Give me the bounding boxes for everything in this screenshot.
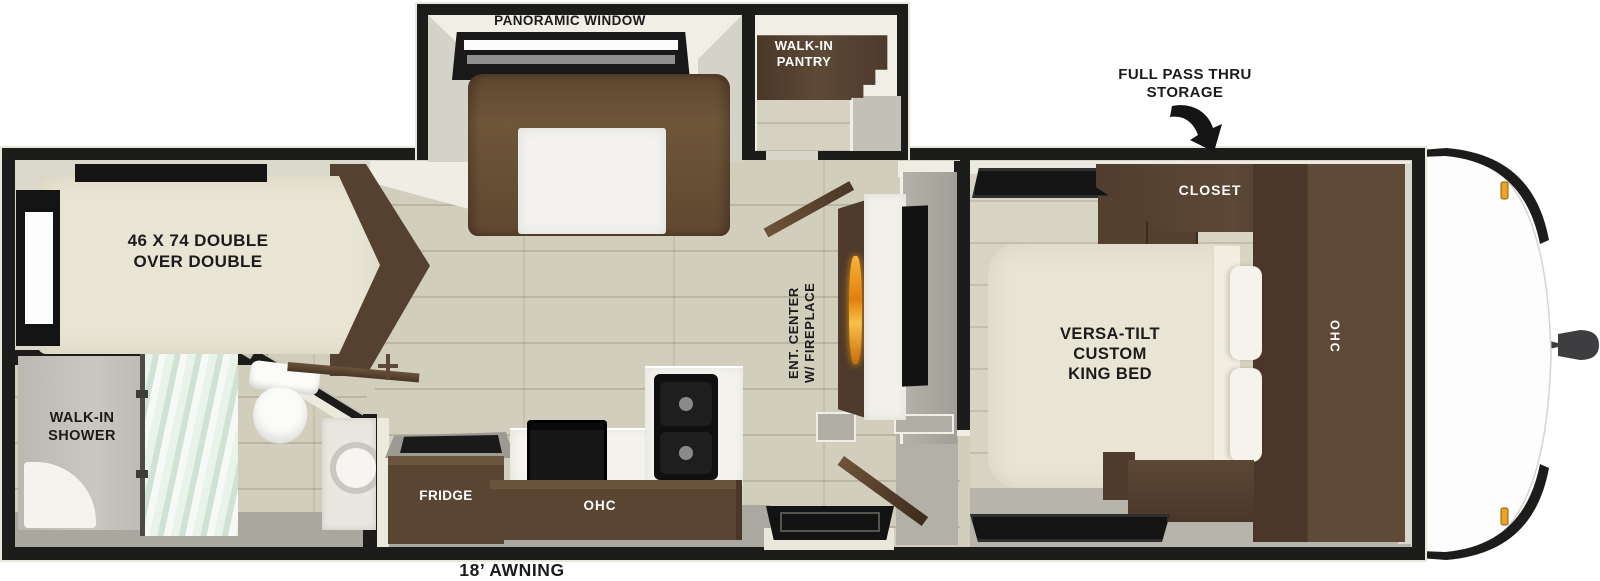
ent-center-label: ENT. CENTER W/ FIREPLACE [786,244,840,422]
closet-label: CLOSET [1155,182,1265,199]
rear-side-window-glass [25,212,53,324]
fridge-label: FRIDGE [390,488,502,504]
nightstand [1128,460,1254,522]
panoramic-window-slat [464,40,678,50]
marker-light-icon [1501,182,1508,199]
entry-corner-floor [896,428,958,545]
awning-label: 18’ AWNING [437,560,587,581]
shower-hinge-icon [136,470,148,478]
sink-drain-icon [679,446,693,460]
fridge-top-inset [400,435,502,453]
kitchen-ohc-label: OHC [540,498,660,514]
bunk-bed-label: 46 X 74 DOUBLE OVER DOUBLE [92,231,304,272]
pantry-floor-wood [757,96,850,151]
pantry-divider-wall [742,6,755,160]
door-handle-icon [378,364,398,368]
floorplan: WALK-IN PANTRY 46 X 74 DOUBLE OVER DOUBL… [0,0,1600,581]
king-bed-label: VERSA-TILT CUSTOM KING BED [1010,324,1210,384]
entry-step-inner [780,512,880,532]
shower-hinge-icon [136,390,148,398]
rear-top-window [75,164,267,182]
fireplace-flame-icon [849,256,862,364]
panoramic-window-slat [467,55,675,64]
washer [322,418,376,530]
storage-arrow-icon [1166,98,1226,154]
marker-light-icon [1501,508,1508,525]
toilet [241,360,327,457]
ent-counter [864,194,906,420]
shower-glass-door [140,354,238,536]
washer-door-icon [330,442,376,494]
stove [527,420,607,484]
sofa-cushion [518,128,666,234]
sink-drain-icon [679,397,693,411]
pantry-floor-gray [850,96,901,151]
tv [902,205,928,386]
panoramic-window-label: PANORAMIC WINDOW [440,13,700,29]
pillow [1230,368,1262,462]
shower-label: WALK-IN SHOWER [26,410,138,445]
bedroom-bottom-window [970,514,1170,542]
bedroom-ohc-label: OHC [1326,320,1341,354]
front-cap [1400,142,1600,568]
pillow [1230,266,1262,360]
pantry-label: WALK-IN PANTRY [752,38,856,70]
